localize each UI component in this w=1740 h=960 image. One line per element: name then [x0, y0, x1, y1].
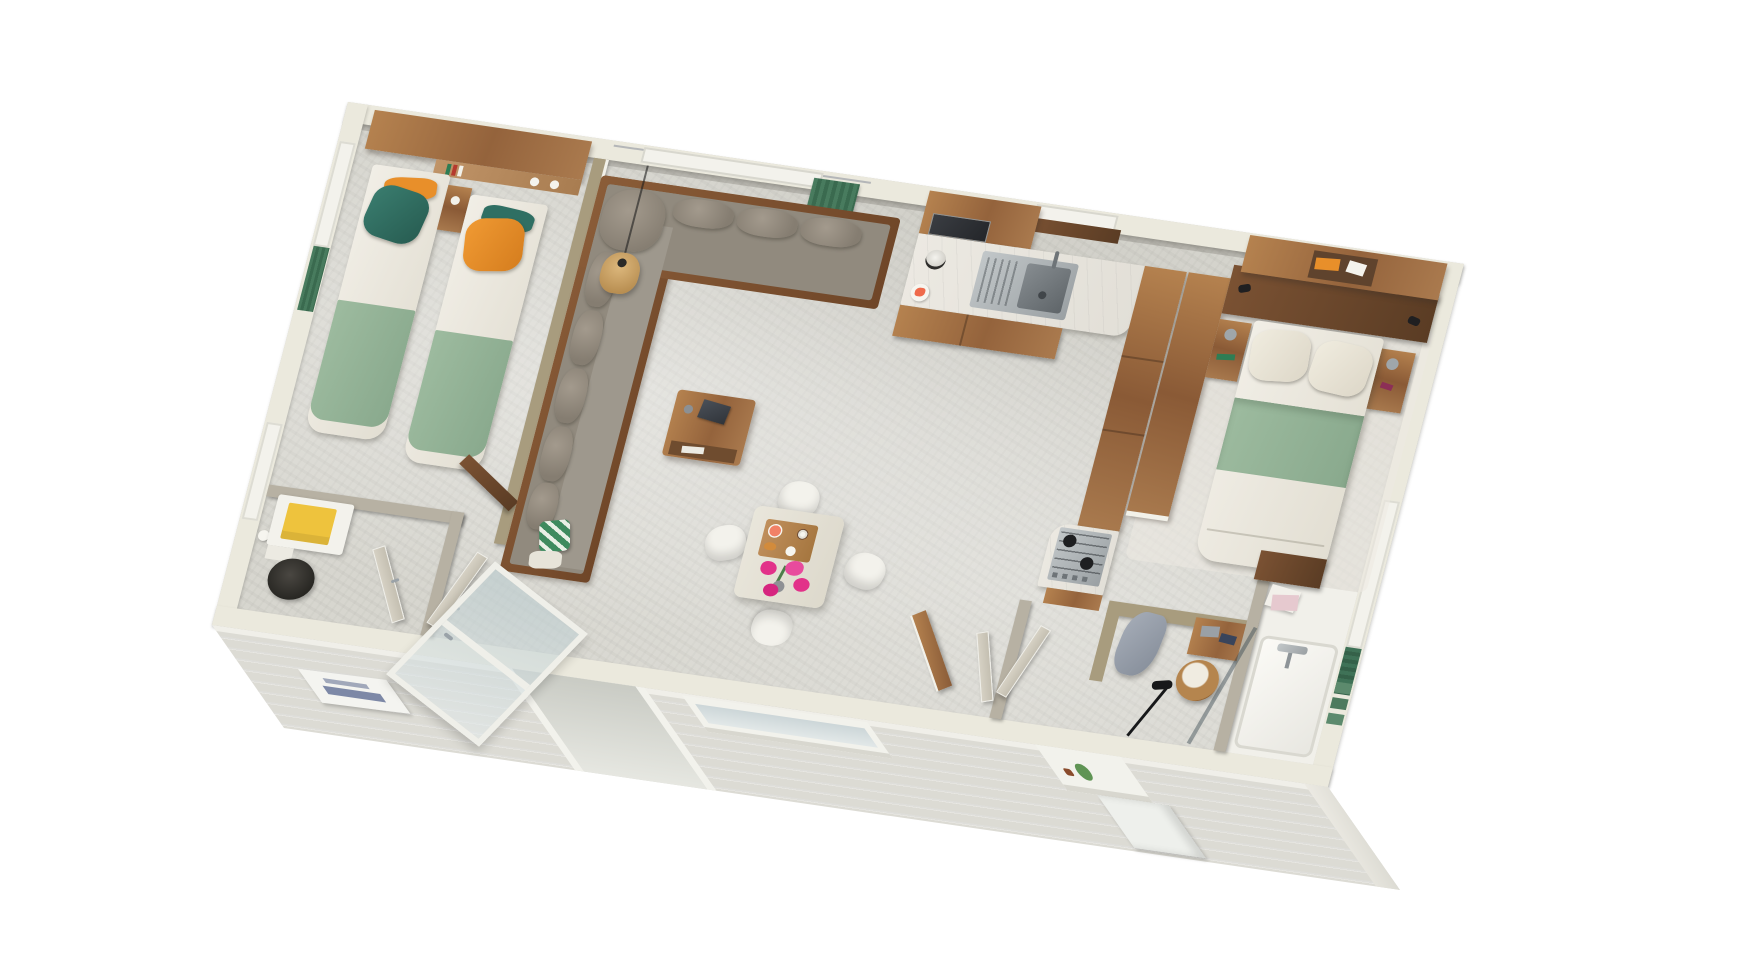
orange-book	[1314, 257, 1340, 271]
white-cushion	[528, 551, 563, 569]
yellow-towel	[280, 503, 337, 546]
breakfast-tray	[757, 519, 818, 563]
arc-floor-lamp-head	[1152, 680, 1173, 690]
folded-towel-gray	[1200, 626, 1220, 638]
green-plaid-pillow	[539, 519, 570, 553]
orange-pillow	[461, 218, 526, 271]
green-towel	[1334, 682, 1353, 695]
bed-pillow	[1246, 329, 1313, 383]
green-towel	[1330, 697, 1349, 710]
green-towel	[1326, 713, 1345, 726]
door-mid-rail	[442, 620, 530, 690]
nightstand-books	[1216, 354, 1235, 361]
hob-grate	[1051, 531, 1109, 577]
floorplan-render	[0, 0, 1740, 960]
towel-stack-pink	[1271, 595, 1300, 611]
